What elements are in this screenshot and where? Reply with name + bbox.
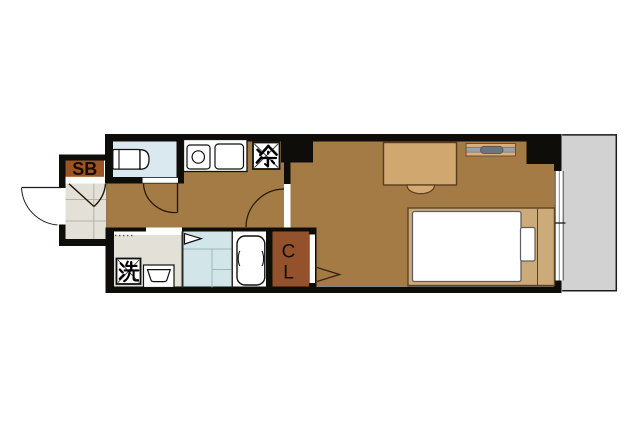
svg-text:L: L	[283, 263, 294, 284]
svg-text:SB: SB	[72, 159, 97, 179]
svg-text:C: C	[282, 242, 296, 263]
